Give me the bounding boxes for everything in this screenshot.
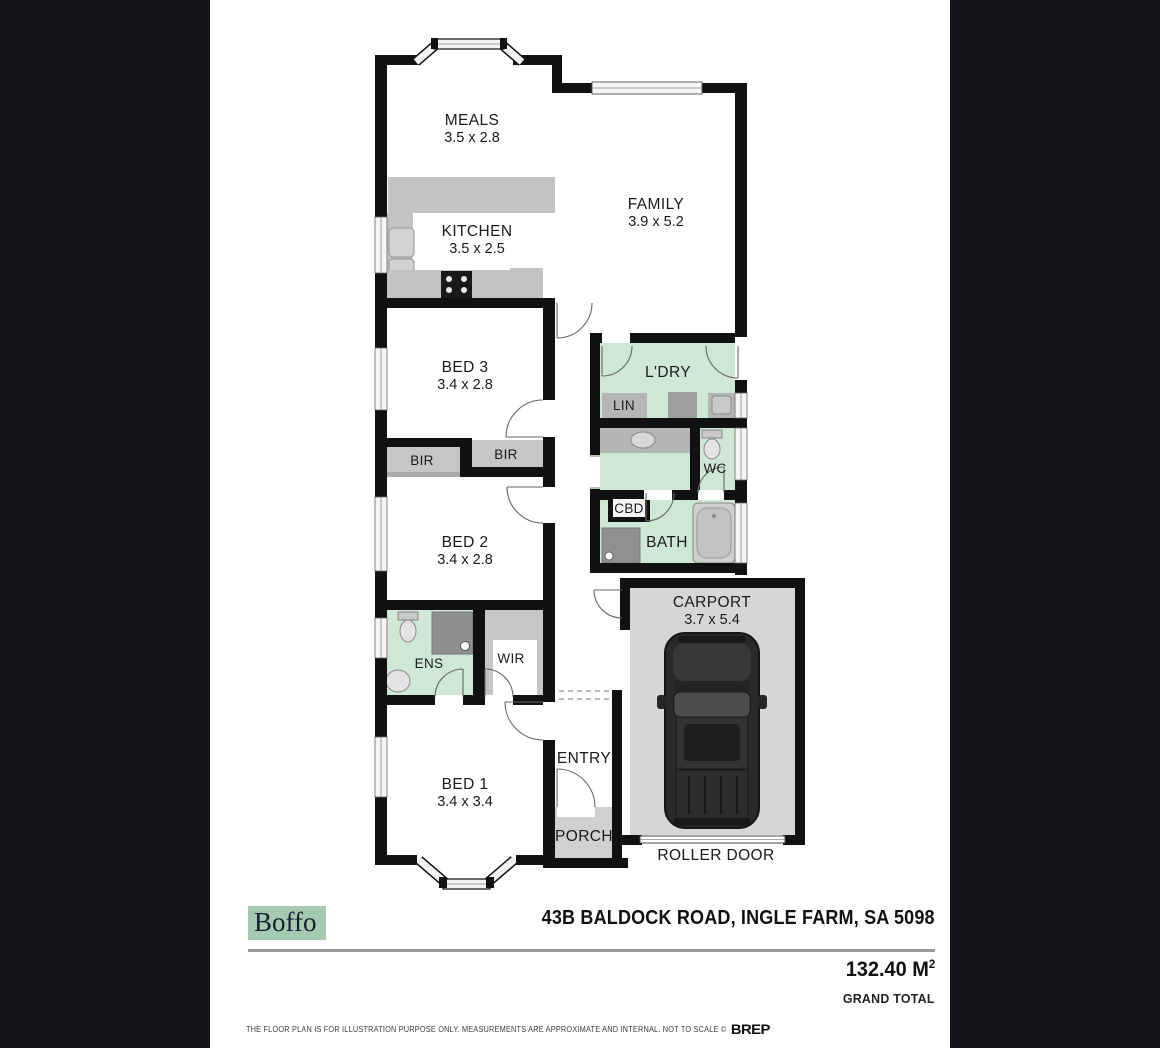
car (657, 633, 767, 828)
dims-bed1: 3.4 x 3.4 (437, 794, 493, 810)
window-wc-right (735, 428, 747, 480)
wall-carport-right (795, 578, 805, 845)
wall-ens-wir (473, 610, 485, 695)
window-bed3-left (375, 348, 387, 410)
label-wir: WIR (497, 651, 524, 666)
wall-laundry-bottom (590, 418, 747, 428)
wall-meals-top-left (375, 55, 420, 65)
wall-bir-top (375, 438, 467, 447)
label-lin: LIN (613, 398, 635, 413)
cooktop (441, 271, 472, 298)
left-dark-panel (0, 0, 210, 1048)
window-ens-left (375, 618, 387, 658)
kitchen-appliance-1 (389, 228, 414, 257)
burner (461, 287, 467, 293)
label-bath: BATH (646, 534, 688, 551)
window-kitchen-left (375, 217, 387, 273)
bir-left-track (383, 472, 460, 477)
dashed-opening (559, 691, 610, 699)
door-bed1 (505, 702, 543, 740)
label-porch: PORCH (555, 828, 613, 845)
ens-basin (386, 670, 410, 692)
wall-ens-top (375, 600, 555, 610)
wall-bir-step (460, 438, 472, 477)
screenshot: MEALS 3.5 x 2.8 FAMILY 3.9 x 5.2 KITCHEN… (0, 0, 1160, 1048)
wall-bath-bottom (590, 563, 747, 573)
label-laundry: L'DRY (645, 364, 691, 381)
car-hood (673, 643, 751, 681)
kitchen-bench-top (388, 177, 555, 213)
door-bed2 (507, 487, 543, 523)
door-entry (557, 769, 595, 807)
bay-window-meals (416, 38, 522, 62)
bathtub-drain (712, 514, 716, 518)
label-bir-left: BIR (410, 453, 433, 468)
car-mirror-left (657, 695, 666, 709)
wall-carport-top (620, 578, 805, 588)
wall-carport-corner-left (620, 835, 642, 845)
label-meals: MEALS (445, 112, 500, 129)
label-bir-right: BIR (494, 447, 517, 462)
label-cbd: CBD (614, 501, 643, 516)
wall-right-exterior (735, 83, 747, 575)
floorplan-sheet: MEALS 3.5 x 2.8 FAMILY 3.9 x 5.2 KITCHEN… (210, 0, 950, 1048)
dims-bed2: 3.4 x 2.8 (437, 552, 493, 568)
window-family-top (592, 82, 702, 94)
label-bed3: BED 3 (442, 359, 489, 376)
floorplan-drawing: MEALS 3.5 x 2.8 FAMILY 3.9 x 5.2 KITCHEN… (210, 0, 950, 900)
label-wc: WC (703, 461, 726, 476)
dims-meals: 3.5 x 2.8 (444, 130, 500, 146)
door-hall-kitchen (557, 303, 592, 338)
washer (668, 392, 697, 418)
disclaimer-text: THE FLOOR PLAN IS FOR ILLUSTRATION PURPO… (246, 1025, 726, 1034)
kitchen-island (510, 268, 543, 298)
laundry-tub-bowl (712, 396, 731, 414)
ens-cistern (398, 612, 418, 620)
window-bed1-left (375, 737, 387, 797)
burner (446, 287, 452, 293)
label-family: FAMILY (628, 196, 684, 213)
disclaimer-row: THE FLOOR PLAN IS FOR ILLUSTRATION PURPO… (246, 1021, 765, 1037)
right-dark-panel (950, 0, 1160, 1048)
total-area-value: 132.40 M (845, 958, 928, 981)
wall-carport-left (620, 578, 630, 630)
vanity-basin (631, 432, 655, 448)
label-bed1: BED 1 (442, 776, 489, 793)
bay-window-bed1 (419, 860, 514, 889)
ens-toilet-bowl (400, 620, 416, 642)
wall-bed1-bottom-left (375, 855, 417, 865)
dims-family: 3.9 x 5.2 (628, 214, 684, 230)
wall-ens-bottom (375, 695, 555, 705)
door-bed3 (506, 400, 543, 437)
shower-head (605, 552, 613, 560)
footer-divider (248, 949, 935, 952)
brep-logo: BREP (731, 1021, 770, 1037)
car-dash (675, 681, 749, 692)
wc-toilet-bowl (704, 439, 720, 459)
car-grille (678, 636, 746, 643)
burner (461, 276, 467, 282)
label-roller-door: ROLLER DOOR (657, 847, 774, 864)
window-bath-right (735, 503, 747, 563)
brand-logo: Boffo (248, 906, 326, 940)
wall-bedroom-right (543, 298, 555, 868)
label-carport: CARPORT (673, 594, 751, 611)
label-kitchen: KITCHEN (442, 223, 513, 240)
dims-kitchen: 3.5 x 2.5 (449, 241, 505, 257)
wall-vanity-wc (690, 428, 700, 495)
total-area: 132.40 M2 (845, 957, 935, 982)
wall-bir-bottom (460, 467, 555, 477)
grand-total-label: GRAND TOTAL (843, 991, 935, 1006)
wall-hall-right (590, 333, 600, 573)
car-sunroof (684, 724, 740, 761)
dims-bed3: 3.4 x 2.8 (437, 377, 493, 393)
car-tail (674, 818, 750, 826)
label-entry: ENTRY (557, 750, 611, 767)
window-laundry-right (735, 393, 747, 418)
dims-carport: 3.7 x 5.4 (684, 612, 740, 628)
wall-carport-corner-right (783, 835, 805, 845)
car-windshield (674, 692, 750, 717)
roller-door (640, 836, 785, 843)
label-bed2: BED 2 (442, 534, 489, 551)
burner (446, 276, 452, 282)
car-mirror-right (758, 695, 767, 709)
wc-cistern (702, 430, 722, 438)
door-side (594, 590, 622, 618)
wall-kitchen-bottom (375, 298, 548, 308)
ens-shower-head (461, 642, 470, 651)
property-address: 43B BALDOCK ROAD, INGLE FARM, SA 5098 (542, 907, 935, 930)
label-ens: ENS (415, 656, 444, 671)
window-bed2-left (375, 497, 387, 571)
wir-robe (493, 640, 537, 695)
total-area-superscript: 2 (929, 957, 935, 971)
